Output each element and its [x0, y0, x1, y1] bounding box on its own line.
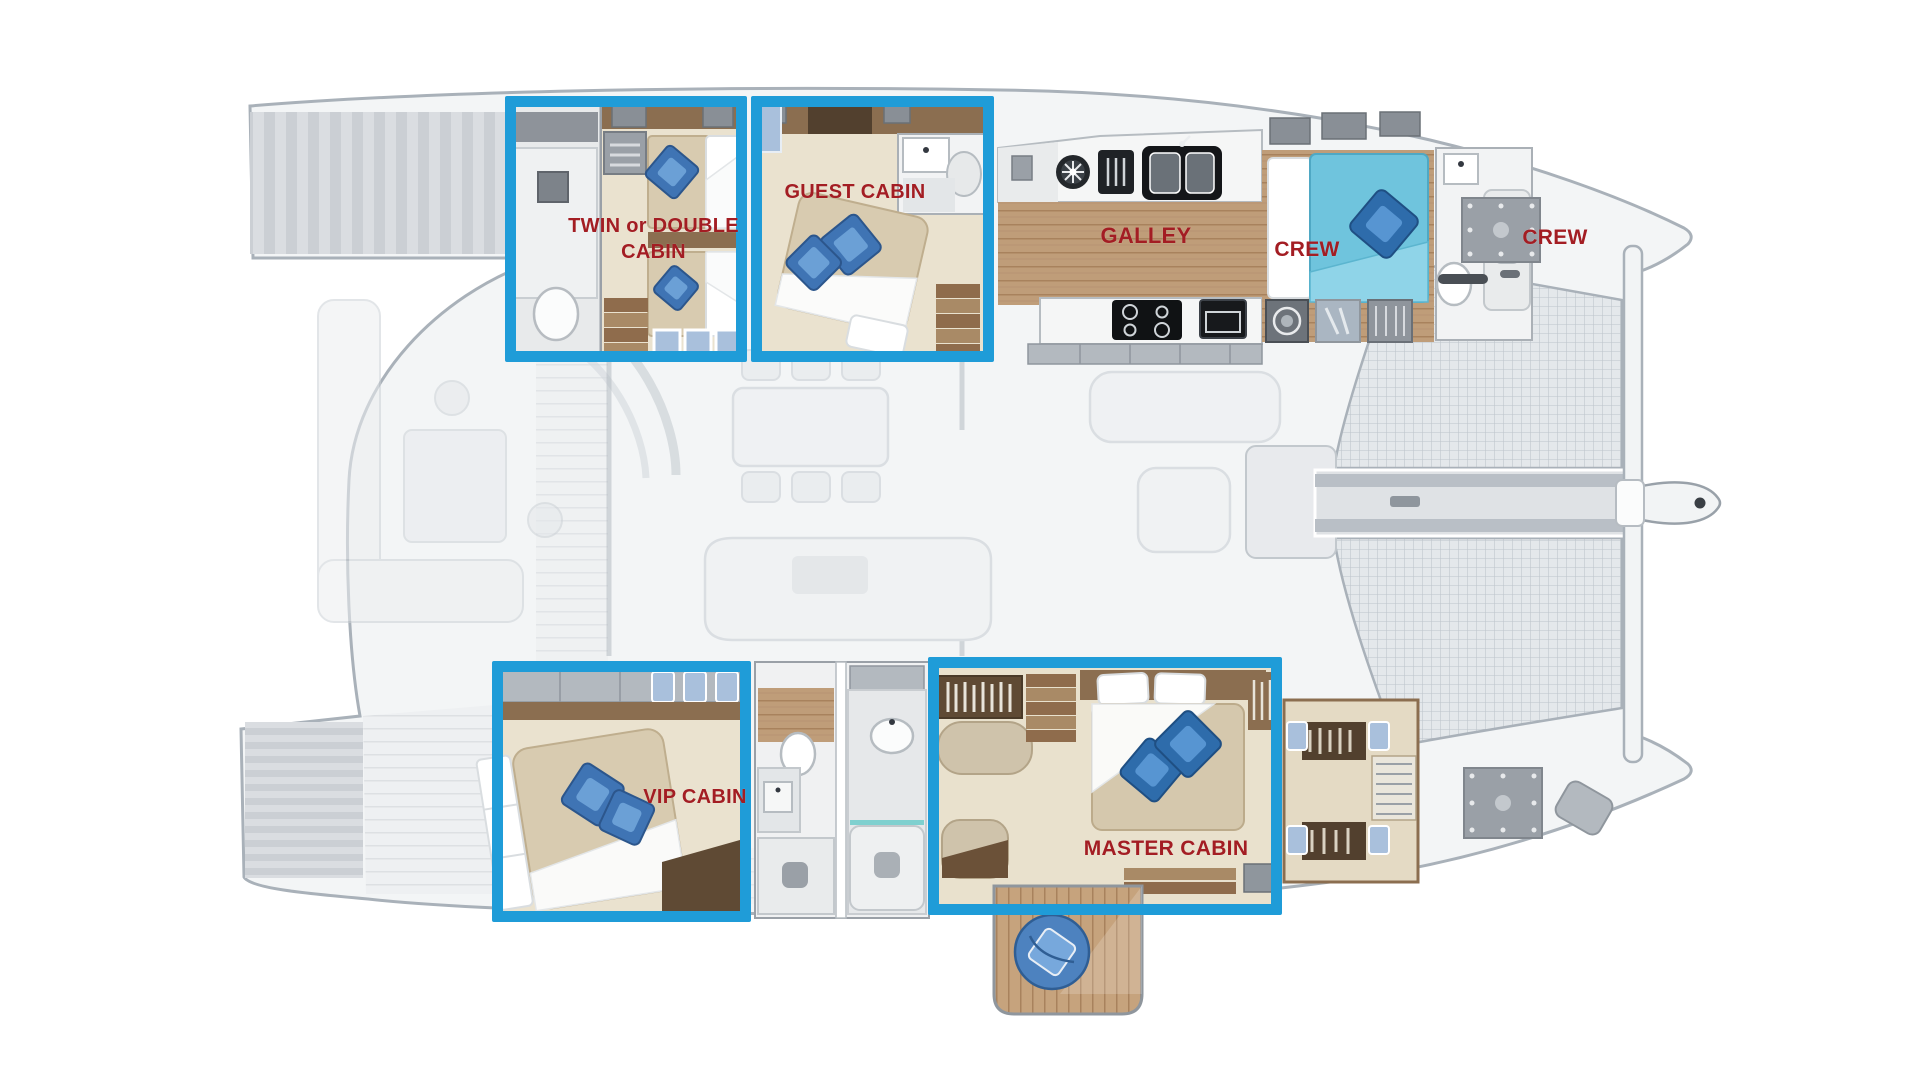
helm-console [1090, 372, 1280, 442]
label-vip-cabin: VIP CABIN [629, 785, 761, 811]
helm-seat [1138, 468, 1230, 552]
galley-cabinets [1028, 344, 1262, 364]
central-bathrooms [755, 662, 929, 918]
bathroom-starboard [848, 666, 926, 914]
dresser [1302, 722, 1366, 760]
label-twin-or-double-cabin: TWIN or DOUBLE CABIN [566, 214, 741, 265]
sink-icon [764, 782, 792, 812]
partition-wall [836, 662, 846, 918]
crew-bed [1268, 154, 1428, 302]
galley-floor [998, 202, 1262, 305]
hatch-icon [1270, 118, 1310, 144]
highlight-box-master-cabin[interactable] [928, 657, 1282, 915]
helm-bucket-seat [1015, 915, 1089, 989]
walk-in-wardrobe [1284, 700, 1418, 882]
label-crew-bow: CREW [1510, 225, 1600, 252]
hatch-icon [1380, 112, 1420, 136]
bowsprit [1642, 482, 1720, 523]
dining-table [733, 388, 888, 466]
sink-icon [1444, 154, 1478, 184]
label-guest-cabin: GUEST CABIN [770, 180, 940, 206]
hanging-locker-icon [1368, 300, 1412, 342]
label-galley: GALLEY [1091, 222, 1201, 250]
bowsprit-fitting [1695, 498, 1706, 509]
stern-locker-port [250, 112, 528, 254]
deck-plan-canvas: TWIN or DOUBLE CABIN GUEST CABIN GALLEY … [0, 0, 1920, 1080]
highlight-box-guest-cabin[interactable] [751, 96, 994, 362]
vent-slot [1438, 274, 1488, 284]
shower-glass [850, 820, 924, 825]
aft-table [404, 430, 506, 542]
cooktop-icon [1112, 300, 1182, 340]
vent-icon [1012, 156, 1032, 180]
washer-icon [1266, 300, 1308, 342]
locker [1316, 300, 1360, 342]
oven-icon [1200, 300, 1246, 338]
cutlery-drawer-icon [1098, 150, 1134, 194]
hanging-rail [1372, 756, 1416, 820]
hatch-icon [1322, 113, 1366, 139]
extractor-fan-icon [1056, 155, 1090, 189]
label-crew-cabin: CREW [1262, 237, 1352, 264]
label-master-cabin: MASTER CABIN [1077, 836, 1255, 863]
stern-locker-starboard [245, 722, 363, 878]
